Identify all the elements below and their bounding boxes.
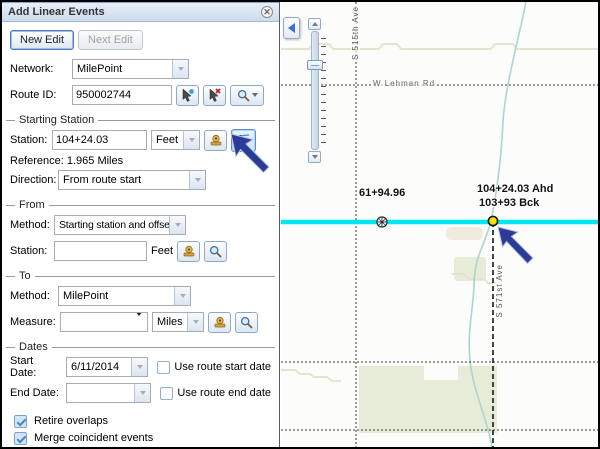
direction-value: From route start [59,174,189,186]
to-method-label: Method: [10,290,54,302]
route-search-menu-button[interactable] [230,85,264,106]
zoom-slider-track[interactable] [311,31,319,150]
chevron-down-icon[interactable] [189,171,205,189]
select-on-map-icon [237,133,251,147]
chevron-down-icon [312,155,318,159]
chevron-down-icon [183,131,199,149]
map-green-area-large [359,366,497,433]
start-date-value: 6/11/2014 [67,361,131,373]
road-horizontal-label: W Lehman Rd [373,79,435,88]
measure-label: Measure: [10,316,56,328]
network-value: MilePoint [73,63,172,75]
select-route-on-map-button[interactable] [176,85,199,106]
route-clear-icon [208,88,222,102]
network-dropdown[interactable]: MilePoint [72,59,189,79]
direction-dropdown[interactable]: From route start [58,170,206,190]
zoom-out-button[interactable] [308,151,321,163]
chevron-down-icon[interactable] [172,60,188,78]
chevron-down-icon[interactable] [174,287,190,305]
from-locate-button[interactable] [177,241,200,262]
station-marker-symbol [377,217,387,227]
panel-collapse-button[interactable] [283,17,300,39]
station-units-value: Feet [152,134,183,146]
chevron-down-icon[interactable] [134,384,150,402]
map-graphics [281,2,598,447]
add-linear-events-panel: Add Linear Events ✕ New Edit Next Edit N… [2,2,280,447]
station-locate-icon [209,133,223,147]
map-minor-road-bottom-left [281,370,341,381]
start-date-dropdown[interactable]: 6/11/2014 [66,357,148,377]
merge-coincident-events-label: Merge coincident events [34,432,153,444]
map-beige-area [446,227,483,240]
from-station-input[interactable] [54,241,147,261]
next-edit-button[interactable]: Next Edit [78,30,143,50]
panel-header: Add Linear Events ✕ [2,2,279,22]
search-icon [209,245,222,258]
chevron-up-icon [312,22,318,26]
road-vertical-right-label: S 571st Ave [495,264,504,318]
from-search-button[interactable] [204,241,227,262]
new-edit-button[interactable]: New Edit [10,30,74,50]
to-method-value: MilePoint [59,290,174,302]
to-method-dropdown[interactable]: MilePoint [58,286,191,306]
retire-overlaps-label: Retire overlaps [34,415,108,427]
route-id-input[interactable] [72,85,172,105]
merge-coincident-events-checkbox[interactable] [14,432,27,445]
zoom-in-button[interactable] [308,18,321,30]
network-label: Network: [10,63,68,75]
route-id-label: Route ID: [10,89,68,101]
search-icon [237,89,250,102]
zoom-slider-ticks [321,38,326,144]
to-locate-button[interactable] [208,312,231,333]
application-window: Add Linear Events ✕ New Edit Next Edit N… [0,0,600,449]
map-green-area-small [454,257,486,281]
use-route-start-date-label: Use route start date [174,361,271,373]
station-locate-button[interactable] [204,130,227,151]
search-icon [240,316,253,329]
end-date-dropdown[interactable] [66,383,151,403]
chevron-down-icon[interactable] [135,316,147,328]
from-section-label: From [19,199,45,211]
from-method-value: Starting station and offset [55,219,169,231]
measure-units-dropdown[interactable]: Miles [152,312,204,332]
close-icon[interactable]: ✕ [261,6,273,18]
station-locate-icon [182,244,196,258]
from-station-label: Station: [10,245,50,257]
from-units-label: Feet [151,245,173,257]
chevron-down-icon[interactable] [169,216,185,234]
station-input[interactable] [52,130,147,150]
station-left-label: 61+94.96 [359,187,405,199]
to-search-button[interactable] [235,312,258,333]
measure-combobox[interactable] [60,312,148,332]
use-route-end-date-label: Use route end date [177,387,271,399]
reference-text: Reference: 1.965 Miles [10,154,271,167]
use-route-end-date-checkbox[interactable] [160,387,173,400]
end-date-label: End Date: [10,387,62,399]
retire-overlaps-checkbox[interactable] [14,415,27,428]
measure-units-value: Miles [153,316,187,328]
station-locate-icon [213,315,227,329]
chevron-down-icon [252,93,258,97]
chevron-down-icon[interactable] [131,358,147,376]
direction-label: Direction: [10,174,54,186]
use-route-start-date-checkbox[interactable] [157,361,170,374]
zoom-slider-thumb[interactable] [307,60,323,70]
station-back-label: 103+93 Bck [479,197,539,209]
panel-title: Add Linear Events [8,6,261,18]
station-units-dropdown[interactable]: Feet [151,130,200,150]
dates-section-label: Dates [19,341,48,353]
starting-station-section-label: Starting Station [19,114,94,126]
station-label: Station: [10,134,48,146]
selected-point-marker[interactable] [488,216,497,225]
clear-route-selection-button[interactable] [203,85,226,106]
map-canvas[interactable]: 61+94.96 104+24.03 Ahd 103+93 Bck W Lehm… [281,2,598,447]
route-select-icon [181,88,195,102]
chevron-left-icon [288,23,295,33]
to-section-label: To [19,270,31,282]
map-minor-road-top [281,44,598,49]
station-ahead-label: 104+24.03 Ahd [477,183,553,195]
start-date-label: Start Date: [10,355,62,379]
from-method-label: Method: [10,219,50,231]
chevron-down-icon [187,313,203,331]
pick-station-on-map-button[interactable] [231,129,256,152]
road-vertical-left-label: S 515th Ave [351,6,360,60]
from-method-dropdown[interactable]: Starting station and offset [54,215,186,235]
